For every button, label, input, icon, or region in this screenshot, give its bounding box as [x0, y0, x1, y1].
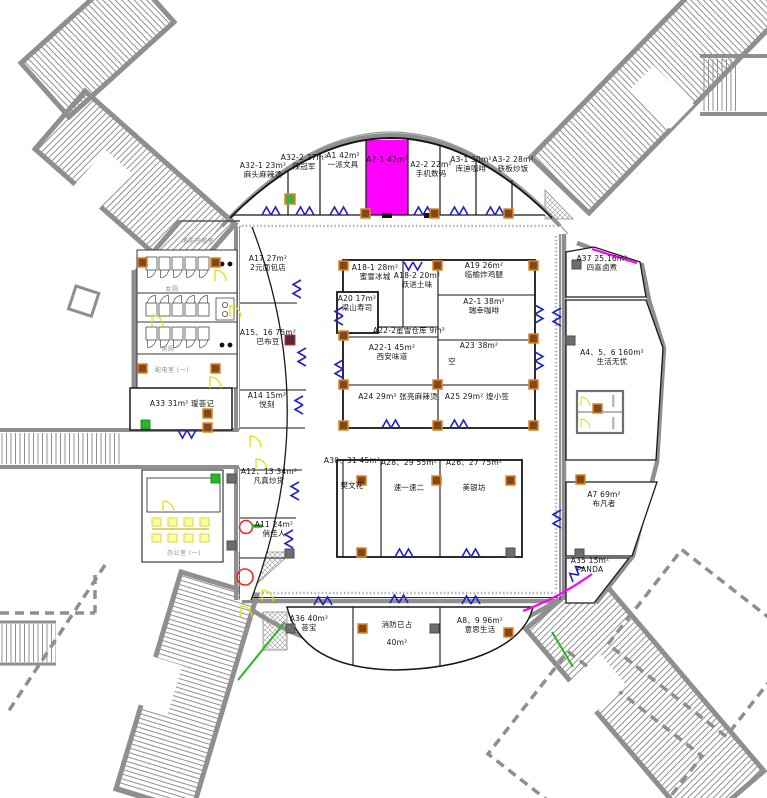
shop-label-A32-1: A32-1 23m²麻头麻辣烫 — [240, 161, 286, 179]
shop-label-A37: A37 25.16m²四喜卤煮 — [576, 254, 627, 272]
shop-label-A18-1: A18-1 28m²蜜雪冰城 — [352, 263, 398, 281]
shop-label-A12-13: A12、13 34m²凡真炒货 — [241, 467, 297, 485]
shop-id-text: A35 15m² — [571, 556, 610, 565]
shop-name-text: 布凡者 — [587, 499, 621, 508]
shop-id-text: A32-1 23m² — [240, 161, 286, 170]
shop-id-text: A26、27 75m² — [446, 458, 502, 467]
shop-id-text: A1 42m² — [326, 151, 360, 160]
shop-label-A36: A36 40m²荟宝 — [290, 614, 329, 632]
shop-label-A30-31: A30、31 45m²樊文花 — [324, 456, 380, 490]
shop-id-text: A25 29m² 煌小签 — [445, 392, 509, 401]
shop-id-text: A2-1 38m² — [463, 297, 504, 306]
shop-name-text: 生活无忧 — [580, 357, 644, 366]
shop-label-A33: A33 31m² 瑷荟记 — [150, 399, 214, 408]
shop-label-A4-5-6: A4、5、6 160m²生活无忧 — [580, 348, 644, 366]
shop-id-text: A20 17m² — [338, 294, 377, 303]
shop-id-text: A22-2蜜雪仓库 9m² — [373, 326, 445, 335]
shop-id-text: A2-2 22m² — [410, 160, 451, 169]
shop-name-text: 俏佳人 — [255, 529, 294, 538]
shop-label-A8-9: A8、9 96m²意思生活 — [457, 616, 503, 634]
shop-label-A14: A14 15m²悦刻 — [248, 391, 287, 409]
shop-label-A28-29: A28、29 55m²速一速二 — [381, 458, 437, 492]
shop-label-A23: A23 38m² — [460, 341, 499, 350]
shop-label-A32-2: A32-2 27m²辣冠军 — [281, 153, 327, 171]
shop-id-text: A4、5、6 160m² — [580, 348, 644, 357]
shop-name-text: 麻头麻辣烫 — [240, 170, 286, 179]
shop-name-text: 辣冠军 — [281, 162, 327, 171]
shop-id-text: A19 26m² — [465, 261, 504, 270]
shop-name-text: 手机数码 — [410, 169, 451, 178]
shop-id-text: A3-2 28m² — [492, 155, 533, 164]
shop-name-text: 西安味道 — [369, 352, 415, 361]
shop-name-text: 瑞幸咖啡 — [463, 306, 504, 315]
shop-label-A23-name: 空 — [448, 357, 456, 366]
shop-name-text: 2元面包店 — [249, 263, 288, 272]
shop-label-A2-2: A2-2 22m²手机数码 — [410, 160, 451, 178]
shop-id-text: 消防已占 — [382, 620, 413, 629]
shop-label-A3-2: A3-2 28m²铁板炒饭 — [492, 155, 533, 173]
shop-label-A25: A25 29m² 煌小签 — [445, 392, 509, 401]
shop-name-text: 凡真炒货 — [241, 476, 297, 485]
room-label-office: 办公室 (一) — [167, 548, 201, 557]
shop-id-text: A32-2 27m² — [281, 153, 327, 162]
shop-label-fire-occupied: 消防已占40m² — [382, 620, 413, 647]
shop-label-A20: A20 17m²梁山寿司 — [338, 294, 377, 312]
shop-id-text: A36 40m² — [290, 614, 329, 623]
shop-label-A26-27: A26、27 75m²美银坊 — [446, 458, 502, 492]
shop-name-text: 库迪咖啡 — [450, 164, 491, 173]
shop-name-text: 一派文具 — [326, 160, 360, 169]
shop-label-A17: A17 27m²2元面包店 — [249, 254, 288, 272]
shop-label-A35: A35 15m²PANDA — [571, 556, 610, 574]
shop-label-A24: A24 29m² 张亮麻辣烫 — [358, 392, 438, 401]
shop-id-text: A18-1 28m² — [352, 263, 398, 272]
shop-name-text: 意思生活 — [457, 625, 503, 634]
shop-name-text: 速一速二 — [381, 483, 437, 492]
shop-label-A7: A7 69m²布凡者 — [587, 490, 621, 508]
room-label-power-room: 配电室 (一) — [155, 365, 189, 374]
shop-name-text: 荟宝 — [290, 623, 329, 632]
shop-name-text: 悦刻 — [248, 400, 287, 409]
shop-id-text: A17 27m² — [249, 254, 288, 263]
shop-label-A19: A19 26m²临榆炸鸡腿 — [465, 261, 504, 279]
shop-label-A2-1-highlight: A2-1 42m² — [366, 155, 407, 164]
room-label-fire-control: 消防控制室 — [182, 236, 215, 245]
shop-label-A18-2: A18-2 20m²跃进土味 — [394, 271, 440, 289]
shop-name-text: 樊文花 — [324, 481, 380, 490]
shop-label-A1: A1 42m²一派文具 — [326, 151, 360, 169]
highlighted-unit-A2-1 — [366, 140, 408, 215]
mall-floor-plan: A32-1 23m²麻头麻辣烫 A32-2 27m²辣冠军 A1 42m²一派文… — [0, 0, 767, 798]
shop-id-text: A7 69m² — [587, 490, 621, 499]
shop-id-text: A22-1 45m² — [369, 343, 415, 352]
shop-name-text: 四喜卤煮 — [576, 263, 627, 272]
shop-id-text: A24 29m² 张亮麻辣烫 — [358, 392, 438, 401]
shop-id-text: A14 15m² — [248, 391, 287, 400]
shop-name-text: 40m² — [382, 638, 413, 647]
room-label-female-wc: 女厕 — [165, 284, 178, 293]
shop-id-text: A33 31m² 瑷荟记 — [150, 399, 214, 408]
shop-id-text: A28、29 55m² — [381, 458, 437, 467]
shop-label-A22-1: A22-1 45m²西安味道 — [369, 343, 415, 361]
shop-name-text: 蜜雪冰城 — [352, 272, 398, 281]
room-label-male-wc: 男厕 — [161, 344, 174, 353]
shop-id-text: A3-1 30m² — [450, 155, 491, 164]
shop-label-A11: A11 24m²俏佳人 — [255, 520, 294, 538]
shop-name-text: PANDA — [571, 565, 610, 574]
shop-name-text: 空 — [448, 357, 456, 366]
shop-name-text: 跃进土味 — [394, 280, 440, 289]
shop-id-text: A23 38m² — [460, 341, 499, 350]
shop-id-text: A18-2 20m² — [394, 271, 440, 280]
shop-name-text: 铁板炒饭 — [492, 164, 533, 173]
shop-id-text: A8、9 96m² — [457, 616, 503, 625]
shop-id-text: A2-1 42m² — [366, 155, 407, 164]
shop-id-text: A37 25.16m² — [576, 254, 627, 263]
shop-name-text: 美银坊 — [446, 483, 502, 492]
shop-name-text: 巴布豆 — [240, 337, 296, 346]
shop-id-text: A11 24m² — [255, 520, 294, 529]
shop-label-A2-1-coffee: A2-1 38m²瑞幸咖啡 — [463, 297, 504, 315]
shop-id-text: A12、13 34m² — [241, 467, 297, 476]
shop-label-A22-2: A22-2蜜雪仓库 9m² — [373, 326, 445, 335]
shop-id-text: A30、31 45m² — [324, 456, 380, 465]
shop-label-A3-1: A3-1 30m²库迪咖啡 — [450, 155, 491, 173]
shop-label-A15-16: A15、16 75m²巴布豆 — [240, 328, 296, 346]
shop-name-text: 临榆炸鸡腿 — [465, 270, 504, 279]
shop-name-text: 梁山寿司 — [338, 303, 377, 312]
shop-id-text: A15、16 75m² — [240, 328, 296, 337]
